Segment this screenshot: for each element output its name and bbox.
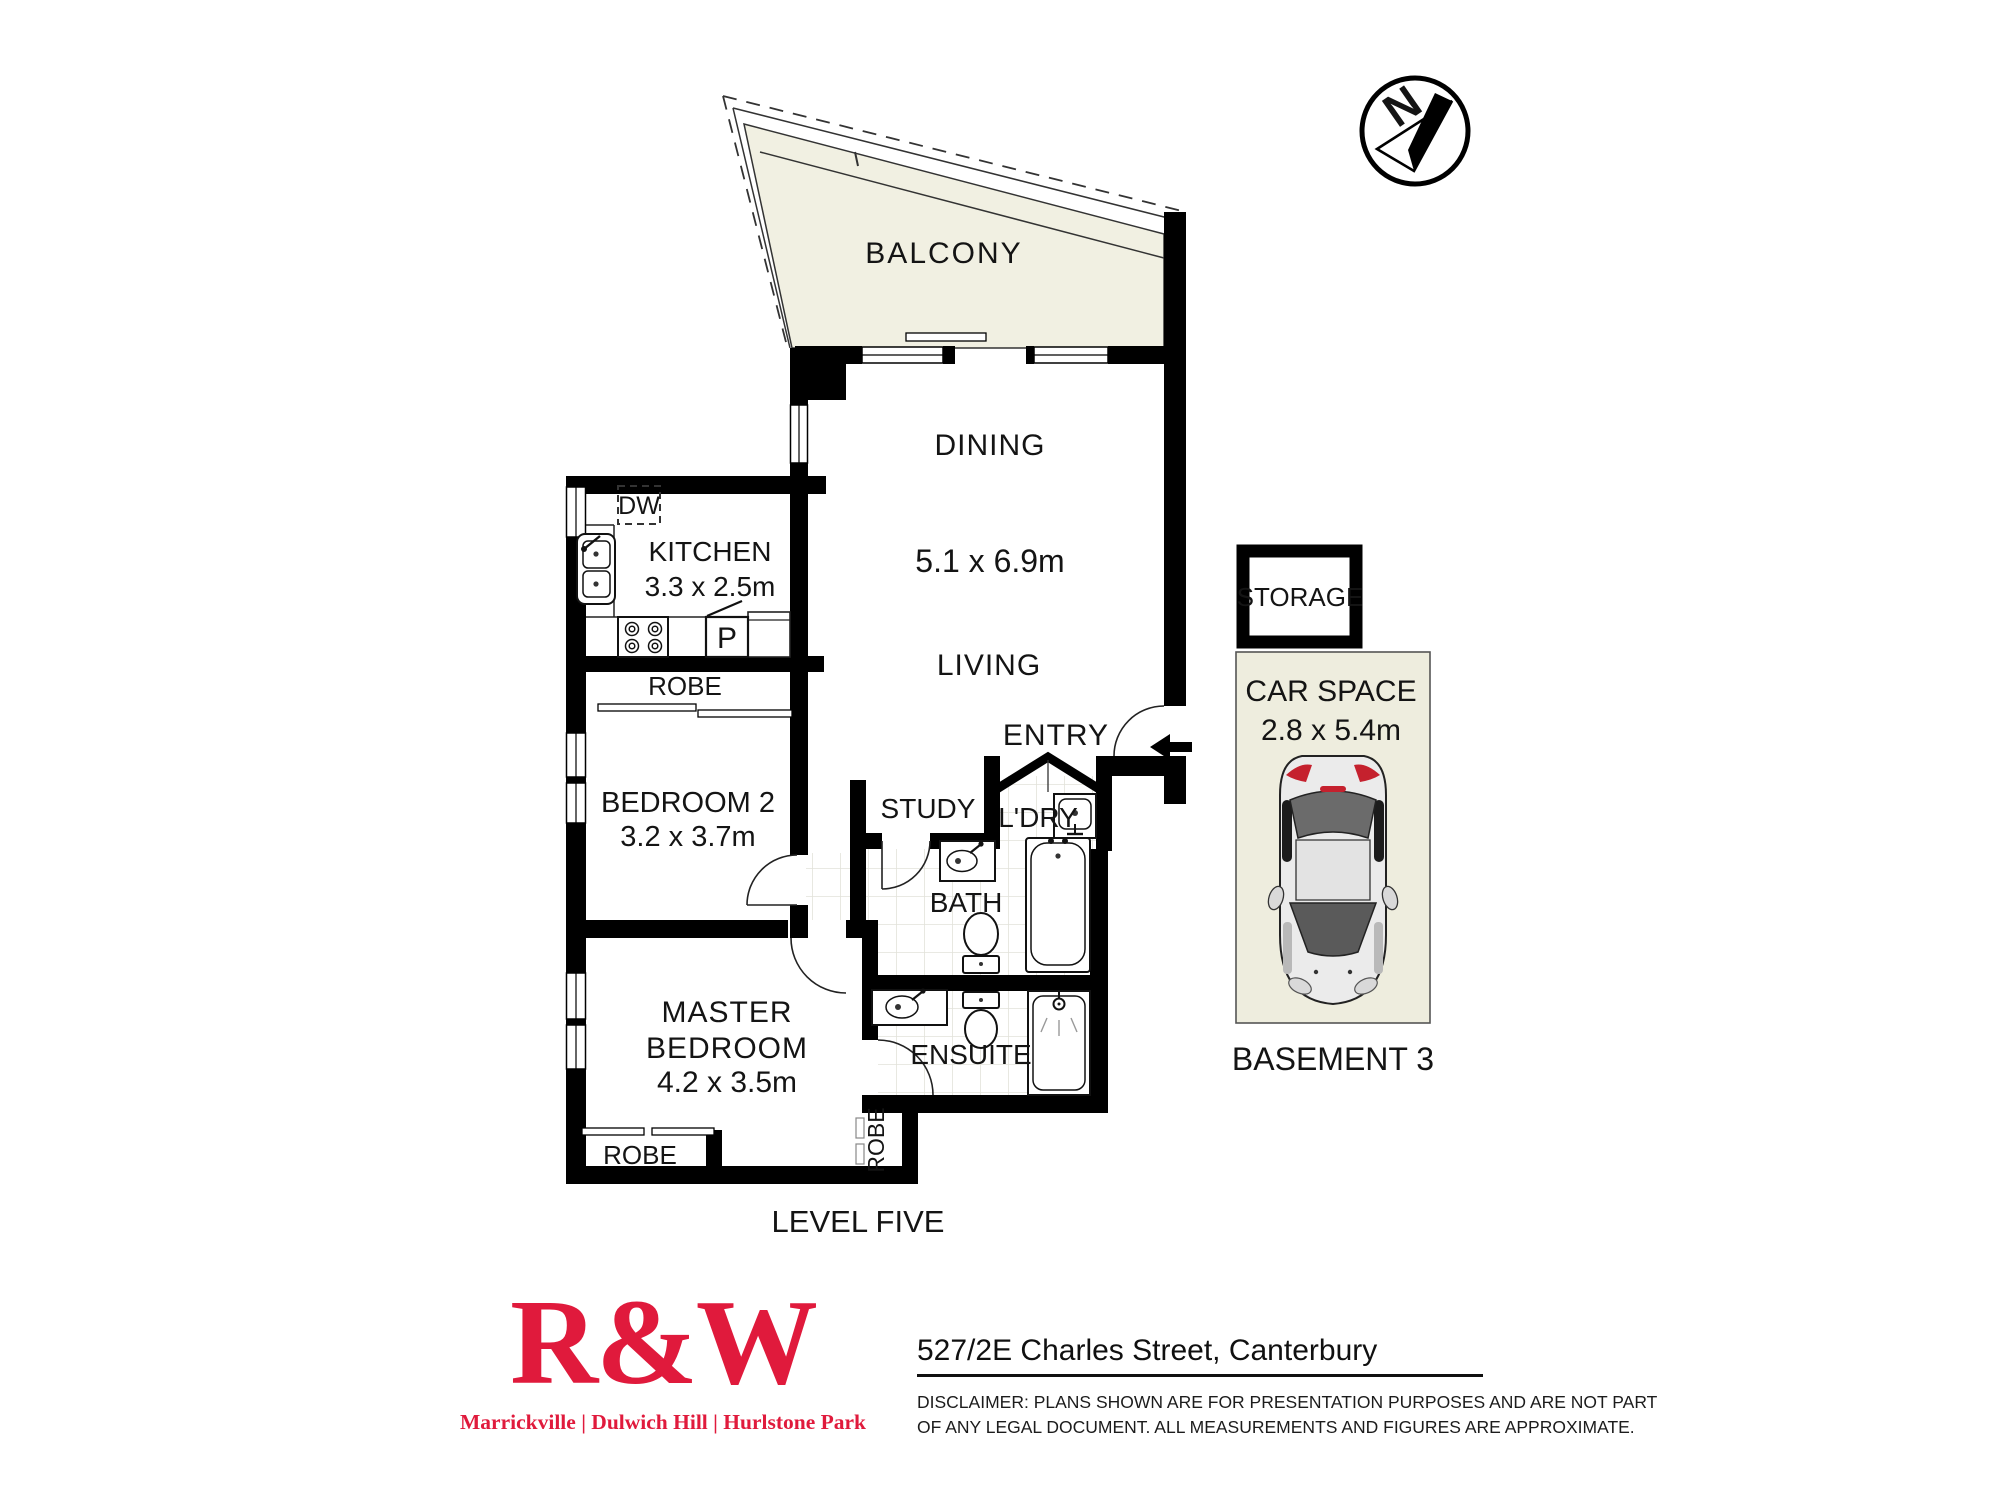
car-space-label: CAR SPACE <box>1245 675 1416 708</box>
disclaimer-line-1: DISCLAIMER: PLANS SHOWN ARE FOR PRESENTA… <box>917 1390 1657 1415</box>
agency-logo: R&W <box>498 1282 828 1404</box>
balcony-area: BALCONY <box>723 96 1186 350</box>
disclaimer-text: DISCLAIMER: PLANS SHOWN ARE FOR PRESENTA… <box>917 1390 1657 1441</box>
ensuite-vanity-icon <box>872 988 947 1025</box>
pantry-icon: P <box>706 617 748 657</box>
car-icon <box>1266 756 1401 1004</box>
kitchen-dims-label: 3.3 x 2.5m <box>645 571 776 602</box>
robe-side-label: ROBE <box>863 1107 889 1172</box>
compass-icon: N <box>1362 75 1468 184</box>
dining-label: DINING <box>935 429 1046 462</box>
living-dims-label: 5.1 x 6.9m <box>915 543 1064 579</box>
master-label-2: BEDROOM <box>646 1032 808 1065</box>
shower-icon <box>1028 991 1090 1095</box>
bedroom2-dims-label: 3.2 x 3.7m <box>620 821 755 853</box>
pantry-label: P <box>717 622 737 655</box>
bath-vanity-icon <box>940 841 995 881</box>
balcony-label: BALCONY <box>865 237 1022 270</box>
storage-label: STORAGE <box>1237 582 1364 612</box>
dw-label: DW <box>618 492 660 520</box>
bath-label: BATH <box>930 887 1003 918</box>
master-label-1: MASTER <box>661 996 792 1029</box>
robe-bed2-label: ROBE <box>648 671 722 701</box>
storage-box: STORAGE <box>1237 551 1364 642</box>
bedroom2-label: BEDROOM 2 <box>601 787 775 819</box>
laundry-label: L'DRY <box>998 802 1078 833</box>
ensuite-label: ENSUITE <box>910 1039 1031 1070</box>
kitchen-label: KITCHEN <box>649 536 772 567</box>
dishwasher-icon: DW <box>618 486 660 524</box>
basement-label: BASEMENT 3 <box>1232 1041 1434 1077</box>
car-space: CAR SPACE 2.8 x 5.4m BASEMENT 3 <box>1232 652 1434 1077</box>
balcony-slider <box>906 333 986 341</box>
living-label: LIVING <box>937 649 1041 682</box>
floorplan-page: BALCONY <box>0 0 2000 1500</box>
car-space-dims-label: 2.8 x 5.4m <box>1261 714 1401 747</box>
entry-label: ENTRY <box>1003 719 1109 752</box>
sink-icon <box>577 534 615 604</box>
master-dims-label: 4.2 x 3.5m <box>657 1066 797 1099</box>
bath-toilet-icon <box>963 913 999 973</box>
address-divider <box>917 1374 1483 1377</box>
cooktop-icon <box>618 617 668 657</box>
property-address: 527/2E Charles Street, Canterbury <box>917 1334 1377 1368</box>
agency-offices: Marrickville | Dulwich Hill | Hurlstone … <box>458 1410 868 1435</box>
level-label: LEVEL FIVE <box>772 1204 945 1239</box>
floorplan-drawing: BALCONY <box>0 0 2000 1500</box>
study-label: STUDY <box>881 793 976 824</box>
bathtub-icon <box>1026 838 1090 972</box>
disclaimer-line-2: OF ANY LEGAL DOCUMENT. ALL MEASUREMENTS … <box>917 1415 1657 1440</box>
robe-master-label: ROBE <box>603 1140 677 1170</box>
